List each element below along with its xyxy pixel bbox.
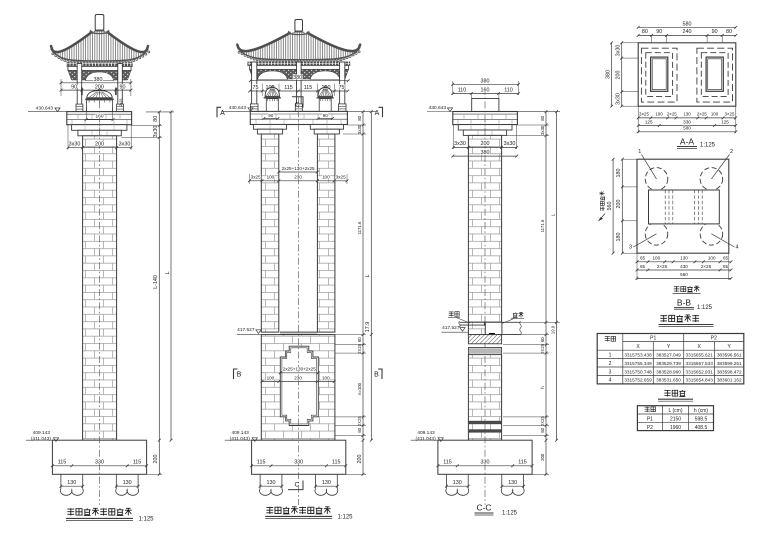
svg-text:L-140: L-140 bbox=[153, 275, 159, 289]
svg-text:115: 115 bbox=[518, 460, 527, 466]
svg-text:3315753.438: 3315753.438 bbox=[624, 353, 652, 358]
svg-text:A: A bbox=[220, 110, 225, 117]
svg-text:2x25: 2x25 bbox=[119, 99, 123, 107]
svg-text:60: 60 bbox=[540, 337, 545, 342]
svg-text:130: 130 bbox=[267, 480, 276, 486]
svg-text:230: 230 bbox=[294, 375, 302, 380]
svg-text:P2: P2 bbox=[711, 336, 717, 342]
svg-text:2x25+130+2x25: 2x25+130+2x25 bbox=[283, 367, 316, 372]
svg-text:130: 130 bbox=[123, 480, 132, 486]
svg-text:409.143: 409.143 bbox=[231, 430, 249, 436]
svg-text:Y: Y bbox=[728, 344, 732, 350]
svg-text:1:125: 1:125 bbox=[700, 142, 716, 148]
svg-text:3x25: 3x25 bbox=[336, 175, 346, 180]
svg-text:330: 330 bbox=[481, 460, 490, 466]
svg-text:90: 90 bbox=[120, 85, 126, 91]
svg-text:1171.6: 1171.6 bbox=[540, 219, 545, 232]
svg-text:115: 115 bbox=[58, 460, 67, 466]
svg-text:L: L bbox=[165, 272, 171, 275]
svg-text:330: 330 bbox=[294, 460, 303, 466]
svg-text:100: 100 bbox=[322, 375, 330, 380]
svg-text:1:125: 1:125 bbox=[502, 511, 518, 517]
svg-text:200: 200 bbox=[616, 71, 622, 80]
svg-text:100: 100 bbox=[652, 256, 660, 261]
svg-text:L (cm): L (cm) bbox=[669, 408, 683, 414]
svg-text:383527.049: 383527.049 bbox=[656, 353, 681, 358]
svg-text:3x30: 3x30 bbox=[616, 45, 622, 57]
svg-text:60: 60 bbox=[357, 427, 362, 432]
svg-text:4: 4 bbox=[735, 245, 738, 251]
svg-text:383598.472: 383598.472 bbox=[717, 369, 742, 374]
svg-text:60: 60 bbox=[540, 427, 545, 432]
svg-text:3x30: 3x30 bbox=[454, 141, 466, 147]
svg-text:3×25: 3×25 bbox=[639, 112, 649, 117]
svg-text:65: 65 bbox=[640, 264, 646, 269]
svg-text:580: 580 bbox=[683, 22, 692, 28]
svg-text:417.527: 417.527 bbox=[237, 327, 255, 333]
svg-text:200: 200 bbox=[357, 455, 363, 464]
svg-text:2150: 2150 bbox=[670, 417, 681, 423]
svg-text:2×25: 2×25 bbox=[657, 264, 668, 269]
svg-text:125: 125 bbox=[721, 119, 729, 124]
svg-text:417.527: 417.527 bbox=[442, 325, 460, 331]
svg-text:125: 125 bbox=[645, 119, 653, 124]
svg-text:80: 80 bbox=[540, 115, 545, 120]
svg-text:598.5: 598.5 bbox=[695, 417, 708, 423]
svg-text:115: 115 bbox=[284, 85, 293, 91]
svg-text:560: 560 bbox=[607, 202, 613, 211]
svg-text:409.143: 409.143 bbox=[33, 430, 51, 436]
svg-text:h (cm): h (cm) bbox=[694, 408, 709, 414]
svg-text:100: 100 bbox=[322, 175, 330, 180]
svg-text:160: 160 bbox=[95, 114, 103, 120]
svg-text:430.643: 430.643 bbox=[36, 105, 54, 111]
svg-text:B-B: B-B bbox=[677, 298, 692, 308]
svg-text:17.9: 17.9 bbox=[365, 322, 371, 333]
svg-text:3315654.843: 3315654.843 bbox=[686, 378, 714, 383]
svg-text:80: 80 bbox=[726, 29, 732, 35]
svg-text:1:125: 1:125 bbox=[337, 515, 353, 521]
svg-text:80: 80 bbox=[153, 116, 159, 122]
svg-text:115: 115 bbox=[257, 460, 266, 466]
svg-text:75: 75 bbox=[253, 85, 259, 91]
svg-text:200: 200 bbox=[616, 200, 622, 209]
svg-text:L: L bbox=[550, 213, 555, 216]
svg-text:383529.739: 383529.739 bbox=[656, 361, 681, 366]
svg-text:380: 380 bbox=[481, 150, 490, 156]
svg-text:3x30: 3x30 bbox=[357, 124, 362, 134]
svg-text:330: 330 bbox=[683, 119, 691, 124]
svg-text:100: 100 bbox=[267, 375, 275, 380]
svg-text:430.643: 430.643 bbox=[229, 105, 247, 111]
svg-text:h: h bbox=[540, 386, 545, 389]
svg-text:2x25+130+2x25: 2x25+130+2x25 bbox=[282, 166, 315, 171]
svg-text:100: 100 bbox=[708, 256, 716, 261]
svg-text:3: 3 bbox=[609, 369, 612, 375]
svg-text:3x30: 3x30 bbox=[153, 126, 159, 138]
svg-text:383601.162: 383601.162 bbox=[717, 378, 742, 383]
svg-text:180: 180 bbox=[616, 233, 622, 242]
svg-text:A-A: A-A bbox=[680, 136, 695, 146]
svg-text:230: 230 bbox=[294, 175, 302, 180]
svg-text:200: 200 bbox=[153, 455, 159, 464]
svg-text:2×25: 2×25 bbox=[667, 112, 677, 117]
svg-text:409.143: 409.143 bbox=[417, 430, 435, 436]
svg-text:380: 380 bbox=[605, 70, 611, 79]
svg-text:(411.043): (411.043) bbox=[416, 436, 437, 442]
svg-text:100: 100 bbox=[711, 112, 719, 117]
svg-text:(411.043): (411.043) bbox=[230, 436, 251, 442]
svg-text:200: 200 bbox=[481, 141, 490, 147]
svg-text:383599.251: 383599.251 bbox=[717, 361, 742, 366]
svg-text:580: 580 bbox=[683, 126, 691, 131]
svg-text:115: 115 bbox=[332, 460, 341, 466]
svg-text:B: B bbox=[237, 372, 242, 379]
svg-text:130: 130 bbox=[67, 480, 76, 486]
svg-text:65: 65 bbox=[723, 256, 729, 261]
svg-text:1171.6: 1171.6 bbox=[357, 221, 362, 234]
svg-text:1:125: 1:125 bbox=[138, 517, 154, 523]
svg-text:180: 180 bbox=[616, 169, 622, 178]
svg-text:380: 380 bbox=[293, 75, 302, 81]
svg-text:80: 80 bbox=[642, 29, 648, 35]
svg-text:P1: P1 bbox=[650, 336, 656, 342]
svg-text:3315750.748: 3315750.748 bbox=[624, 369, 652, 374]
svg-text:100: 100 bbox=[267, 175, 275, 180]
svg-text:90: 90 bbox=[323, 113, 329, 118]
svg-text:(411.043): (411.043) bbox=[31, 436, 52, 442]
svg-text:200: 200 bbox=[540, 453, 545, 461]
svg-text:Y: Y bbox=[667, 344, 671, 350]
svg-text:380: 380 bbox=[481, 79, 490, 85]
svg-text:100: 100 bbox=[655, 112, 663, 117]
svg-text:B: B bbox=[374, 372, 379, 379]
svg-text:110: 110 bbox=[504, 87, 513, 93]
svg-text:130: 130 bbox=[508, 480, 517, 486]
svg-text:330: 330 bbox=[95, 460, 104, 466]
svg-text:160: 160 bbox=[481, 87, 490, 93]
svg-text:1:125: 1:125 bbox=[697, 305, 713, 311]
svg-text:240: 240 bbox=[683, 29, 692, 35]
svg-text:3315755.349: 3315755.349 bbox=[624, 361, 652, 366]
svg-text:90: 90 bbox=[712, 29, 718, 35]
svg-text:3: 3 bbox=[629, 245, 632, 251]
svg-text:430: 430 bbox=[680, 264, 688, 269]
svg-text:115: 115 bbox=[443, 460, 452, 466]
svg-text:383531.650: 383531.650 bbox=[656, 378, 681, 383]
svg-text:C-C: C-C bbox=[476, 503, 491, 513]
svg-text:130: 130 bbox=[322, 480, 331, 486]
svg-text:65: 65 bbox=[723, 264, 729, 269]
svg-text:A: A bbox=[375, 110, 380, 117]
svg-text:3x30: 3x30 bbox=[616, 93, 622, 105]
svg-text:C: C bbox=[295, 102, 300, 109]
svg-text:130: 130 bbox=[680, 256, 688, 261]
svg-text:110: 110 bbox=[458, 87, 467, 93]
svg-text:3×25: 3×25 bbox=[725, 112, 735, 117]
svg-text:3315652.931: 3315652.931 bbox=[686, 369, 714, 374]
svg-text:1: 1 bbox=[638, 149, 641, 155]
svg-text:200: 200 bbox=[95, 141, 104, 147]
svg-text:2×25: 2×25 bbox=[701, 264, 712, 269]
svg-text:X: X bbox=[636, 344, 640, 350]
svg-text:3x30: 3x30 bbox=[540, 125, 545, 135]
svg-text:130: 130 bbox=[683, 112, 691, 117]
svg-text:75: 75 bbox=[339, 85, 345, 91]
svg-text:n=100: n=100 bbox=[357, 382, 362, 395]
svg-text:380: 380 bbox=[94, 77, 103, 83]
svg-text:3x30: 3x30 bbox=[69, 141, 81, 147]
svg-text:1960: 1960 bbox=[670, 425, 681, 431]
svg-text:2×25: 2×25 bbox=[697, 112, 707, 117]
svg-text:3x25: 3x25 bbox=[251, 175, 261, 180]
svg-text:P2: P2 bbox=[647, 425, 653, 431]
svg-text:80: 80 bbox=[357, 115, 362, 120]
svg-text:560: 560 bbox=[680, 272, 688, 277]
svg-text:3x30: 3x30 bbox=[119, 141, 131, 147]
svg-text:383528.960: 383528.960 bbox=[656, 369, 681, 374]
svg-text:3x30: 3x30 bbox=[504, 141, 516, 147]
svg-text:90: 90 bbox=[268, 113, 274, 118]
svg-text:90: 90 bbox=[656, 29, 662, 35]
svg-text:3315655.621: 3315655.621 bbox=[686, 353, 714, 358]
svg-text:130: 130 bbox=[453, 480, 462, 486]
svg-text:383596.561: 383596.561 bbox=[717, 353, 742, 358]
svg-text:3315657.533: 3315657.533 bbox=[686, 361, 714, 366]
svg-text:19.9: 19.9 bbox=[550, 325, 555, 334]
svg-text:115: 115 bbox=[304, 85, 313, 91]
svg-text:1: 1 bbox=[609, 353, 612, 359]
svg-text:60: 60 bbox=[357, 337, 362, 342]
svg-text:408.5: 408.5 bbox=[695, 425, 708, 431]
svg-text:P1: P1 bbox=[647, 417, 653, 423]
svg-text:430.643: 430.643 bbox=[429, 105, 447, 111]
svg-text:2: 2 bbox=[609, 361, 612, 367]
svg-text:4: 4 bbox=[609, 378, 612, 384]
svg-text:65: 65 bbox=[640, 256, 646, 261]
svg-text:X: X bbox=[698, 344, 702, 350]
svg-text:90: 90 bbox=[71, 85, 77, 91]
svg-text:3315752.659: 3315752.659 bbox=[624, 378, 652, 383]
svg-text:L: L bbox=[365, 275, 371, 278]
svg-text:115: 115 bbox=[133, 460, 142, 466]
svg-text:2: 2 bbox=[730, 149, 733, 155]
